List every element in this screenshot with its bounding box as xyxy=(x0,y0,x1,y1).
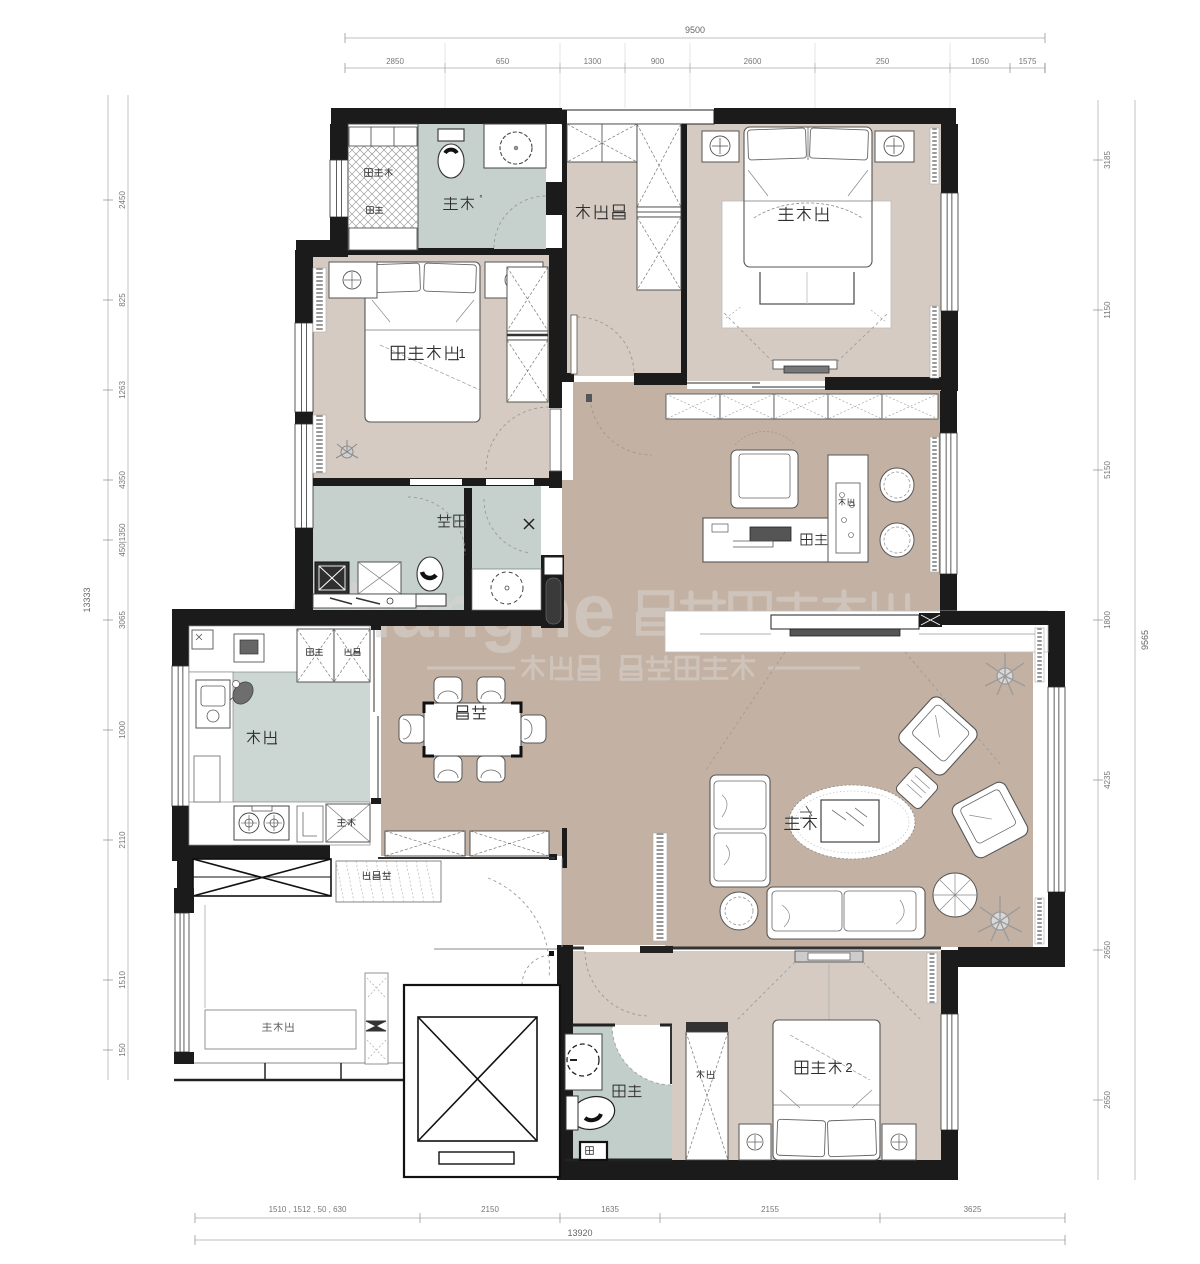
svg-text:1150: 1150 xyxy=(1103,301,1112,319)
svg-text:1263: 1263 xyxy=(118,381,127,399)
svg-text:1635: 1635 xyxy=(601,1205,619,1214)
svg-text:3065: 3065 xyxy=(118,611,127,629)
svg-text:2650: 2650 xyxy=(1103,941,1112,959)
svg-text:5150: 5150 xyxy=(1103,461,1112,479)
svg-text:1300: 1300 xyxy=(584,57,602,66)
svg-text:825: 825 xyxy=(118,293,127,307)
svg-text:2: 2 xyxy=(845,1060,852,1075)
svg-text:1510: 1510 xyxy=(118,971,127,989)
svg-text:2450: 2450 xyxy=(118,191,127,209)
svg-text:1575: 1575 xyxy=(1019,57,1037,66)
svg-text:250: 250 xyxy=(876,57,890,66)
svg-text:2155: 2155 xyxy=(761,1205,779,1214)
svg-text:2850: 2850 xyxy=(386,57,404,66)
svg-text:9500: 9500 xyxy=(685,25,705,35)
svg-text:13333: 13333 xyxy=(82,587,92,612)
svg-text:1050: 1050 xyxy=(971,57,989,66)
svg-text:1800: 1800 xyxy=(1103,611,1112,629)
svg-text:3625: 3625 xyxy=(964,1205,982,1214)
svg-text:°: ° xyxy=(479,194,482,203)
svg-text:4235: 4235 xyxy=(1103,771,1112,789)
svg-text:4350: 4350 xyxy=(118,471,127,489)
svg-text:1: 1 xyxy=(458,346,465,361)
svg-text:900: 900 xyxy=(651,57,665,66)
svg-text:150: 150 xyxy=(118,1043,127,1057)
svg-text:1510 , 1512 , 50 , 630: 1510 , 1512 , 50 , 630 xyxy=(269,1205,347,1214)
svg-text:13920: 13920 xyxy=(567,1228,592,1238)
svg-text:9565: 9565 xyxy=(1140,630,1150,650)
svg-text:3185: 3185 xyxy=(1103,151,1112,169)
svg-text:2650: 2650 xyxy=(1103,1091,1112,1109)
svg-text:2110: 2110 xyxy=(118,831,127,849)
svg-text:2150: 2150 xyxy=(481,1205,499,1214)
svg-text:450|1350: 450|1350 xyxy=(118,523,127,557)
svg-text:1000: 1000 xyxy=(118,721,127,739)
svg-text:2600: 2600 xyxy=(744,57,762,66)
svg-text:650: 650 xyxy=(496,57,510,66)
